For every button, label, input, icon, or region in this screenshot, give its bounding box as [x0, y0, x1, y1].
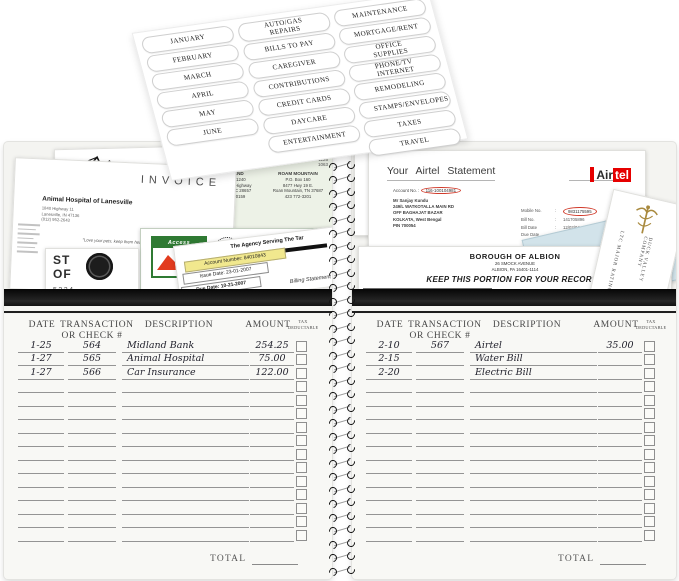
ledger-row [4, 516, 332, 530]
tax-deductible-checkbox [644, 341, 655, 352]
entry-check-number [68, 461, 116, 474]
entry-check-number [68, 380, 116, 393]
entry-check-number [68, 475, 116, 488]
invoice-company: Animal Hospital of Lanesville [42, 195, 133, 206]
ledger-row [4, 394, 332, 408]
entry-amount [598, 407, 642, 420]
entry-date [366, 380, 412, 393]
ledger-row: 1-27 565 Animal Hospital 75.00 [4, 354, 332, 368]
entry-check-number [416, 421, 464, 434]
entry-check-number [416, 367, 464, 380]
ledger-row [352, 448, 676, 462]
entry-amount [598, 515, 642, 528]
entry-amount [250, 421, 294, 434]
entry-description [470, 502, 597, 515]
entry-amount [598, 380, 642, 393]
header-date: DATE [18, 320, 66, 330]
entry-date [18, 434, 64, 447]
entry-date: 1-27 [18, 367, 64, 380]
entry-amount [598, 353, 642, 366]
entry-description [122, 461, 249, 474]
entry-description [470, 448, 597, 461]
tax-deductible-checkbox [296, 530, 307, 541]
tax-deductible-checkbox [296, 503, 307, 514]
entry-amount [250, 448, 294, 461]
invoice-detail-lines [17, 220, 42, 256]
ledger-row [352, 435, 676, 449]
entry-check-number [416, 529, 464, 542]
ledger-row: 2-10 567 Airtel 35.00 [352, 340, 676, 354]
tax-deductible-checkbox [296, 449, 307, 460]
entry-description: Airtel [470, 340, 597, 353]
ledger-row: 1-27 566 Car Insurance 122.00 [4, 367, 332, 381]
entry-check-number: 565 [68, 353, 116, 366]
entry-date [18, 380, 64, 393]
entry-amount [598, 502, 642, 515]
total-row-right: TOTAL [352, 552, 676, 568]
entry-date [18, 488, 64, 501]
tax-deductible-checkbox [296, 516, 307, 527]
entry-amount: 75.00 [250, 353, 294, 366]
tax-deductible-checkbox [644, 381, 655, 392]
entry-description [470, 421, 597, 434]
ledger-row [352, 381, 676, 395]
entry-date [366, 434, 412, 447]
entry-date [18, 394, 64, 407]
header-description: DESCRIPTION [116, 320, 242, 330]
entry-description [122, 434, 249, 447]
entry-check-number [416, 515, 464, 528]
header-amount: AMOUNT [242, 320, 294, 330]
tax-deductible-checkbox [296, 368, 307, 379]
entry-description [470, 394, 597, 407]
ledger-row [352, 516, 676, 530]
total-row-left: TOTAL [4, 552, 332, 568]
ledger-page-right: DATE TRANSACTIONOR CHECK # DESCRIPTION A… [352, 314, 676, 579]
entry-check-number [416, 353, 464, 366]
entry-description: Water Bill [470, 353, 597, 366]
invoice-address: 1840 Highway 11 Lanesville, IN 47136 (81… [41, 205, 80, 224]
entry-amount [598, 461, 642, 474]
entry-date [366, 407, 412, 420]
billing-statement-label: Billing Statement [290, 274, 332, 285]
entry-date [18, 502, 64, 515]
entry-date [18, 515, 64, 528]
ledger-row: 1-25 564 Midland Bank 254.25 [4, 340, 332, 354]
entry-description [470, 515, 597, 528]
entry-description [470, 529, 597, 542]
entry-description [470, 488, 597, 501]
entry-date [366, 394, 412, 407]
tax-deductible-checkbox [296, 476, 307, 487]
entry-description [122, 529, 249, 542]
entry-check-number: 566 [68, 367, 116, 380]
tax-deductible-checkbox [644, 422, 655, 433]
entry-date: 2-15 [366, 353, 412, 366]
ledger-row [4, 462, 332, 476]
ledger-row [352, 489, 676, 503]
header-description: DESCRIPTION [464, 320, 590, 330]
entry-description [122, 515, 249, 528]
entry-check-number [68, 421, 116, 434]
tax-deductible-checkbox [644, 476, 655, 487]
entry-amount [250, 488, 294, 501]
tax-deductible-checkbox [644, 368, 655, 379]
tax-deductible-checkbox [644, 489, 655, 500]
airtel-logo: Airtel [590, 167, 631, 182]
entry-check-number [416, 448, 464, 461]
ledger-row [352, 529, 676, 543]
entry-check-number [416, 502, 464, 515]
total-line [252, 564, 298, 565]
entry-check-number [416, 475, 464, 488]
entry-check-number [68, 529, 116, 542]
entry-check-number [416, 407, 464, 420]
entry-date [366, 502, 412, 515]
tax-deductible-checkbox [296, 341, 307, 352]
header-date: DATE [366, 320, 414, 330]
tax-deductible-checkbox [644, 449, 655, 460]
entry-description [122, 475, 249, 488]
entry-date [366, 448, 412, 461]
entry-description [122, 394, 249, 407]
header-tax-deductible: TAXDEDUCTABLE [636, 319, 666, 330]
entry-amount [250, 434, 294, 447]
entry-amount [598, 421, 642, 434]
entry-check-number [416, 488, 464, 501]
entry-date [366, 529, 412, 542]
ledger-row: 2-20 Electric Bill [352, 367, 676, 381]
entry-description [122, 421, 249, 434]
tax-deductible-checkbox [296, 408, 307, 419]
ledger-row [352, 421, 676, 435]
entry-amount [598, 448, 642, 461]
entry-amount [598, 488, 642, 501]
payee-address-right: ROAM MOUNTAIN P.O. Box 160 8477 Hwy 19 E… [267, 171, 329, 199]
ledger-rows-right: 2-10 567 Airtel 35.00 2-15 Water Bill [352, 340, 676, 543]
entry-amount [598, 475, 642, 488]
entry-date [366, 421, 412, 434]
ledger-row [4, 381, 332, 395]
entry-date [18, 529, 64, 542]
ledger-row: 2-15 Water Bill [352, 354, 676, 368]
spiral-binding [329, 147, 355, 575]
entry-description [122, 448, 249, 461]
tax-deductible-checkbox [296, 422, 307, 433]
entry-check-number [68, 488, 116, 501]
header-amount: AMOUNT [590, 320, 642, 330]
divider-line [352, 311, 676, 313]
ledger-row [4, 489, 332, 503]
entry-date [366, 488, 412, 501]
entry-date [18, 461, 64, 474]
ledger-row [352, 462, 676, 476]
entry-description [122, 380, 249, 393]
entry-description: Electric Bill [470, 367, 597, 380]
entry-description [470, 380, 597, 393]
tax-deductible-checkbox [644, 354, 655, 365]
entry-check-number: 567 [416, 340, 464, 353]
entry-check-number [416, 394, 464, 407]
entry-date [18, 421, 64, 434]
entry-amount [250, 475, 294, 488]
entry-description [122, 502, 249, 515]
entry-description [122, 407, 249, 420]
entry-amount [598, 367, 642, 380]
tax-deductible-checkbox [644, 435, 655, 446]
ledger-row [4, 421, 332, 435]
customer-address: Mr Sanjay Kundu 249/L WATKOTALLA MAIN RD… [393, 198, 454, 229]
entry-amount: 254.25 [250, 340, 294, 353]
tax-deductible-checkbox [296, 489, 307, 500]
total-label: TOTAL [210, 554, 246, 564]
divider-line [4, 311, 332, 313]
entry-date [366, 461, 412, 474]
round-stamp-icon [86, 253, 113, 280]
ledger-rows-left: 1-25 564 Midland Bank 254.25 1-27 565 An… [4, 340, 332, 543]
entry-description [470, 407, 597, 420]
tax-deductible-checkbox [644, 462, 655, 473]
entry-amount [250, 461, 294, 474]
ledger-row [4, 448, 332, 462]
entry-amount [250, 515, 294, 528]
product-photo: 11261063 NEWLAND P.O. Box 1240 73 Db Par… [0, 0, 679, 581]
entry-date: 2-10 [366, 340, 412, 353]
pocket-edge-band [4, 289, 332, 306]
ledger-row [352, 475, 676, 489]
ledger-row [352, 394, 676, 408]
entry-amount [598, 394, 642, 407]
account-label: Account No. : [393, 188, 419, 193]
ledger-row [352, 502, 676, 516]
entry-description [470, 434, 597, 447]
entry-description [470, 475, 597, 488]
entry-amount [598, 529, 642, 542]
tax-deductible-checkbox [296, 354, 307, 365]
right-pocket: Your Airtel Statement Account No. : 116-… [352, 142, 676, 306]
tax-deductible-checkbox [296, 435, 307, 446]
entry-date: 1-27 [18, 353, 64, 366]
tax-deductible-checkbox [644, 408, 655, 419]
entry-amount [250, 394, 294, 407]
total-label: TOTAL [558, 554, 594, 564]
entry-date [366, 475, 412, 488]
entry-amount [250, 380, 294, 393]
ledger-row [4, 475, 332, 489]
entry-description: Midland Bank [122, 340, 249, 353]
entry-date [18, 407, 64, 420]
entry-date [366, 515, 412, 528]
entry-date: 2-20 [366, 367, 412, 380]
entry-date: 1-25 [18, 340, 64, 353]
entry-check-number [68, 515, 116, 528]
entry-check-number [68, 407, 116, 420]
tax-deductible-checkbox [296, 462, 307, 473]
entry-date [18, 475, 64, 488]
entry-description [470, 461, 597, 474]
entry-amount: 35.00 [598, 340, 642, 353]
card-text: LTC MAJOR RATING [604, 230, 624, 297]
ledger-row [4, 529, 332, 543]
organizer-left-panel: 11261063 NEWLAND P.O. Box 1240 73 Db Par… [4, 142, 332, 579]
entry-check-number [416, 434, 464, 447]
organizer-right-panel: Your Airtel Statement Account No. : 116-… [352, 142, 676, 579]
total-line [600, 564, 646, 565]
account-number-circled: 116-100104981 [421, 187, 461, 194]
header-tax-deductible: TAXDEDUCTABLE [288, 319, 318, 330]
entry-amount [250, 407, 294, 420]
entry-amount [598, 434, 642, 447]
tax-deductible-checkbox [296, 395, 307, 406]
tax-deductible-checkbox [644, 395, 655, 406]
entry-check-number [416, 380, 464, 393]
entry-date [18, 448, 64, 461]
ledger-row [4, 408, 332, 422]
entry-description [122, 488, 249, 501]
caduceus-icon [629, 201, 662, 238]
pocket-edge-band [352, 289, 676, 306]
tax-deductible-checkbox [644, 516, 655, 527]
airtel-title: Your Airtel Statement [387, 165, 495, 181]
entry-description: Car Insurance [122, 367, 249, 380]
entry-check-number [68, 502, 116, 515]
entry-check-number: 564 [68, 340, 116, 353]
entry-check-number [68, 434, 116, 447]
tax-deductible-checkbox [644, 503, 655, 514]
entry-amount [250, 529, 294, 542]
tax-deductible-checkbox [644, 530, 655, 541]
entry-description: Animal Hospital [122, 353, 249, 366]
entry-amount [250, 502, 294, 515]
ledger-row [4, 502, 332, 516]
entry-check-number [68, 394, 116, 407]
entry-amount: 122.00 [250, 367, 294, 380]
tax-deductible-checkbox [296, 381, 307, 392]
entry-check-number [68, 448, 116, 461]
ledger-row [352, 408, 676, 422]
entry-check-number [416, 461, 464, 474]
ledger-page-left: DATE TRANSACTIONOR CHECK # DESCRIPTION A… [4, 314, 332, 579]
ledger-row [4, 435, 332, 449]
